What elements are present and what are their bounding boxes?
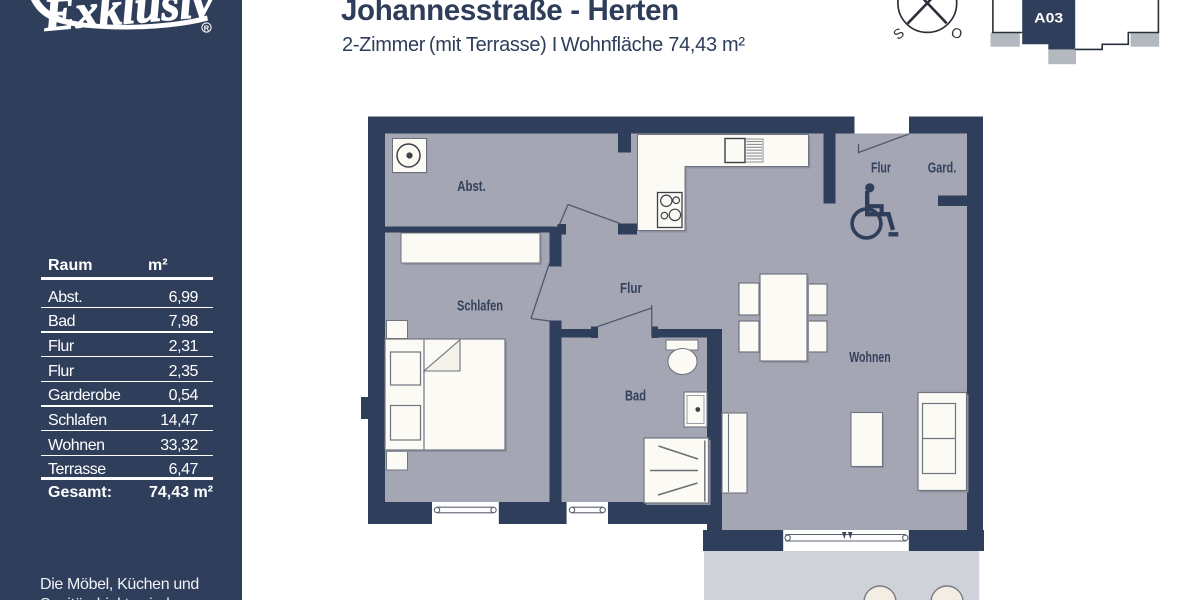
svg-text:Bad: Bad xyxy=(625,387,646,404)
svg-text:Flur: Flur xyxy=(620,280,642,297)
svg-text:Abst.: Abst. xyxy=(457,178,486,195)
svg-text:Schlafen: Schlafen xyxy=(457,297,503,314)
svg-text:Wohnen: Wohnen xyxy=(849,349,891,366)
svg-text:Flur: Flur xyxy=(871,159,891,176)
svg-text:Gard.: Gard. xyxy=(928,159,957,176)
